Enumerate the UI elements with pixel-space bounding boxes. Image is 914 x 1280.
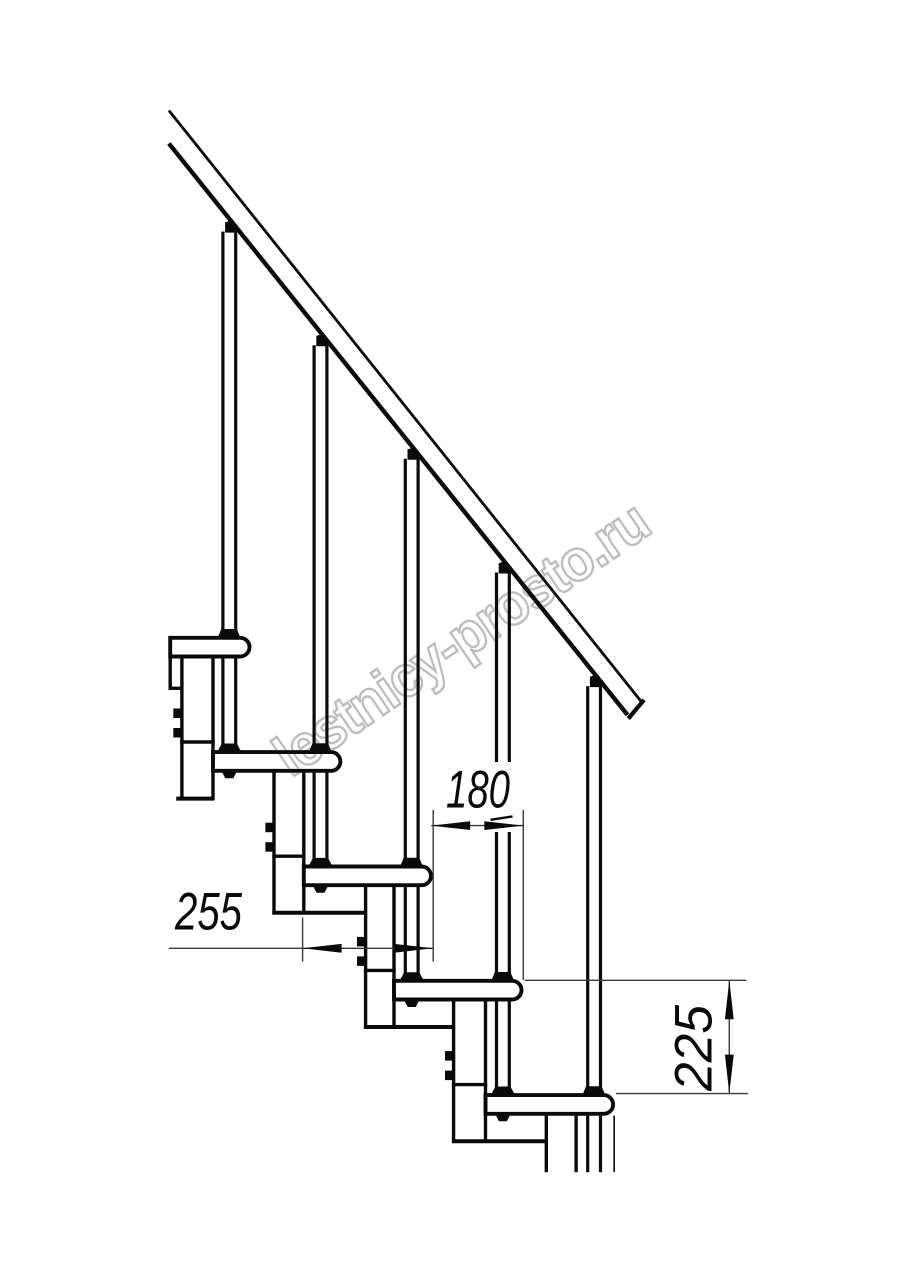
svg-text:180: 180 <box>446 761 510 820</box>
svg-text:225: 225 <box>665 1004 724 1091</box>
svg-text:255: 255 <box>174 883 242 942</box>
